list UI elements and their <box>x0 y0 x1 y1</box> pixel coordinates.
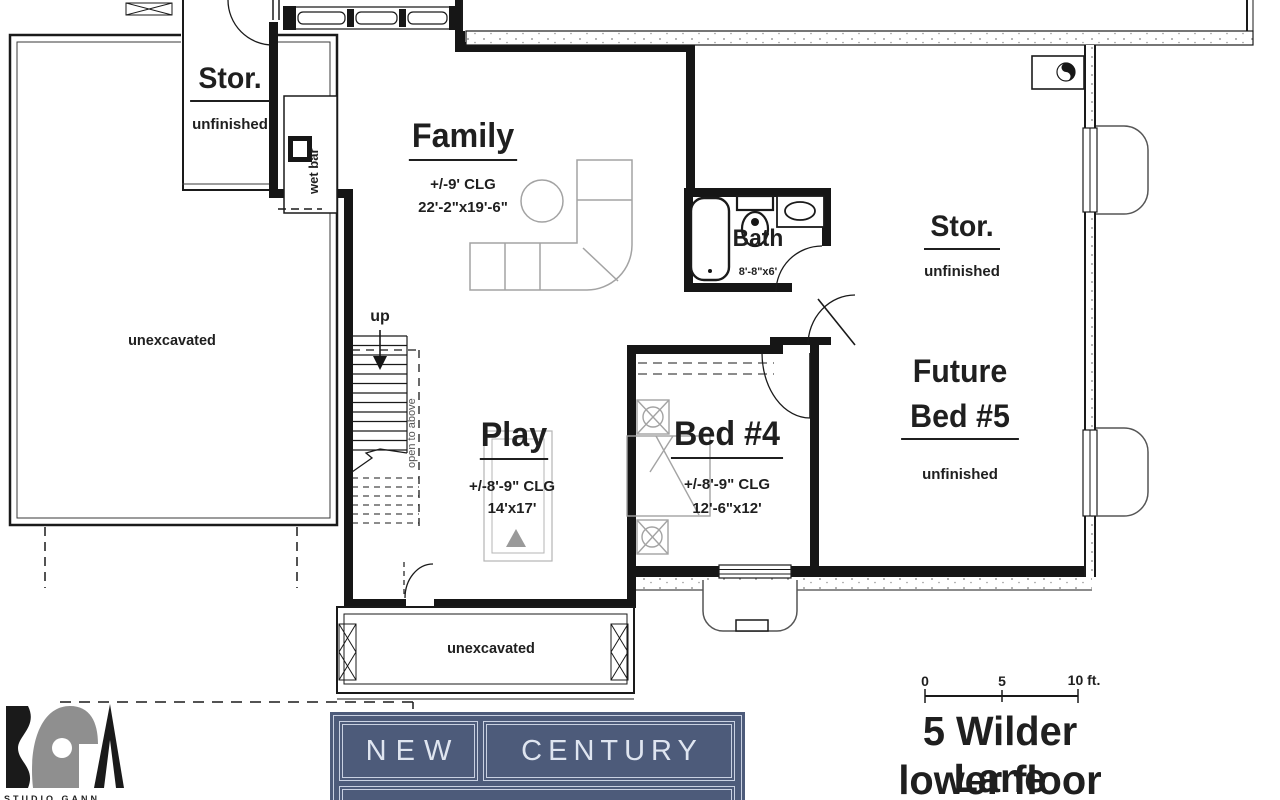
bath-dimensions: 8'-8"x6' <box>729 267 787 278</box>
room-label-stor-right: Stor. <box>924 212 1000 250</box>
builder-logo-century-cell: CENTURY <box>483 721 735 781</box>
stairs-up-label: up <box>366 309 394 325</box>
builder-logo-word-new: NEW <box>342 724 475 778</box>
room-label-bed5: Bed #5 <box>901 400 1019 440</box>
builder-logo: NEW CENTURY MODERN <box>330 712 745 800</box>
bed4-ceiling: +/-8'-9" CLG <box>666 477 788 492</box>
play-ceiling: +/-8'-9" CLG <box>454 479 570 494</box>
family-ceiling: +/-9' CLG <box>408 177 518 192</box>
play-dimensions: 14'x17' <box>468 501 556 516</box>
post-bowtie-icon <box>126 3 172 15</box>
room-status-stor-left: unfinished <box>184 117 276 132</box>
unexcavated-bottom-label: unexcavated <box>436 642 546 657</box>
right-exterior-wall <box>1083 45 1148 577</box>
builder-logo-word-century: CENTURY <box>486 724 732 778</box>
walls-thick <box>269 0 1092 608</box>
room-label-family: Family <box>409 119 517 161</box>
room-label-play: Play <box>480 418 548 460</box>
tub-icon <box>691 198 729 280</box>
wet-bar-label: wet bar <box>306 131 321 211</box>
builder-logo-modern-cell: MODERN <box>339 786 735 800</box>
room-status-stor-right: unfinished <box>912 264 1012 279</box>
room-label-bed4: Bed #4 <box>671 417 783 459</box>
family-dimensions: 22'-2"x19'-6" <box>403 200 523 215</box>
unexcavated-left-label: unexcavated <box>120 334 224 349</box>
porch-unexcavated <box>60 607 634 712</box>
room-label-future: Future <box>908 355 1013 388</box>
floor-plan-canvas: Stor. unfinished Family +/-9' CLG 22'-2"… <box>0 0 1280 800</box>
scale-bar <box>925 689 1078 703</box>
scale-tick-0: 0 <box>917 674 933 688</box>
open-to-above-label: open to above <box>406 385 418 481</box>
mechanical-box-icon <box>1032 56 1084 89</box>
architect-tagline: STUDIO GANN <box>4 794 144 800</box>
sga-logo <box>6 704 124 788</box>
room-status-bed5: unfinished <box>905 467 1015 482</box>
plan-title-type: lower floor plan <box>866 757 1134 800</box>
builder-logo-new-cell: NEW <box>339 721 478 781</box>
upper-structure <box>462 0 1253 45</box>
bed4-dimensions: 12'-6"x12' <box>670 501 784 516</box>
builder-logo-word-modern: MODERN <box>342 789 732 800</box>
scale-tick-10: 10 ft. <box>1058 673 1110 687</box>
sink-vanity-icon <box>777 196 824 227</box>
round-table-icon <box>521 180 563 222</box>
scale-tick-5: 5 <box>994 674 1010 688</box>
window-band-top <box>283 6 458 30</box>
room-label-bath: Bath <box>732 227 783 251</box>
room-label-stor-left: Stor. <box>190 64 270 102</box>
